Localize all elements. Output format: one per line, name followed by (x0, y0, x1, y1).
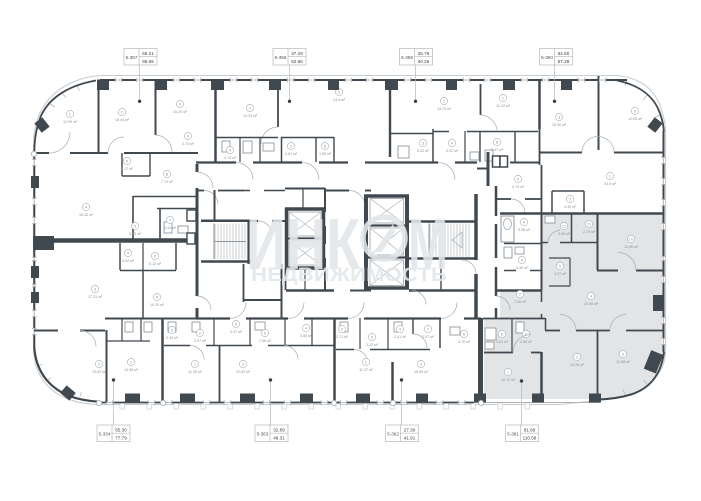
svg-text:3.07 м²: 3.07 м² (554, 272, 567, 276)
svg-text:5.85 м²: 5.85 м² (129, 232, 142, 236)
svg-text:52.86: 52.86 (291, 59, 303, 64)
svg-text:15.44 м²: 15.44 м² (115, 118, 130, 122)
svg-text:25.76: 25.76 (418, 51, 430, 56)
svg-text:3.55 м²: 3.55 м² (520, 340, 533, 344)
svg-text:13.56 м²: 13.56 м² (624, 245, 639, 249)
svg-text:3.02 м²: 3.02 м² (417, 149, 430, 153)
svg-text:110.58: 110.58 (523, 436, 537, 441)
svg-text:12.99 м²: 12.99 м² (63, 120, 78, 124)
svg-text:24.9 м²: 24.9 м² (604, 182, 617, 186)
svg-text:5-359: 5-359 (401, 55, 413, 60)
svg-text:НЕДВИЖИМОСТЬ: НЕДВИЖИМОСТЬ (251, 264, 447, 286)
svg-text:3.06 м²: 3.06 м² (558, 232, 571, 236)
svg-text:2.61 м²: 2.61 м² (285, 152, 298, 156)
svg-text:10: 10 (629, 236, 634, 241)
svg-text:48.31: 48.31 (273, 436, 285, 441)
svg-text:10.72 м²: 10.72 м² (501, 378, 516, 382)
svg-text:3.61 м²: 3.61 м² (496, 340, 509, 344)
svg-text:37.29: 37.29 (291, 51, 303, 56)
svg-text:4.70 м²: 4.70 м² (512, 185, 525, 189)
svg-text:2.76 м²: 2.76 м² (583, 230, 596, 234)
svg-text:2.57 м²: 2.57 м² (230, 330, 243, 334)
svg-text:15.55 м²: 15.55 м² (414, 370, 429, 374)
svg-text:14.73 м²: 14.73 м² (437, 107, 452, 111)
svg-text:7.74 м²: 7.74 м² (161, 180, 174, 184)
svg-text:13.23 м²: 13.23 м² (243, 114, 258, 118)
svg-text:3.22 м²: 3.22 м² (446, 149, 459, 153)
svg-text:10.20 м²: 10.20 м² (150, 303, 165, 307)
svg-text:69.21: 69.21 (142, 51, 154, 56)
svg-text:11.26 м²: 11.26 м² (188, 370, 203, 374)
svg-text:5-363: 5-363 (257, 431, 269, 436)
svg-text:2.34 м²: 2.34 м² (166, 336, 179, 340)
svg-text:27.31 м²: 27.31 м² (88, 295, 103, 299)
svg-text:12.88 м²: 12.88 м² (616, 360, 631, 364)
svg-text:2.57 м²: 2.57 м² (194, 339, 207, 343)
svg-text:15.30 м²: 15.30 м² (552, 123, 567, 127)
svg-text:5.12 м²: 5.12 м² (149, 262, 162, 266)
svg-text:55.30: 55.30 (115, 427, 127, 432)
svg-text:4.44 м²: 4.44 м² (164, 226, 177, 230)
svg-text:14.36 м²: 14.36 м² (124, 368, 139, 372)
svg-text:5-357: 5-357 (126, 55, 138, 60)
svg-text:5-361: 5-361 (507, 431, 519, 436)
svg-text:3.70 м²: 3.70 м² (458, 340, 471, 344)
svg-text:32.89: 32.89 (273, 427, 285, 432)
svg-text:7.26 м²: 7.26 м² (514, 300, 527, 304)
svg-text:5-358: 5-358 (275, 55, 287, 60)
svg-text:4.40 м²: 4.40 м² (516, 266, 529, 270)
svg-text:4.30 м²: 4.30 м² (564, 205, 577, 209)
svg-text:2.07 м²: 2.07 м² (422, 335, 435, 339)
svg-text:67.28: 67.28 (558, 59, 570, 64)
svg-text:41.91: 41.91 (404, 436, 416, 441)
svg-text:14.28 м²: 14.28 м² (570, 363, 585, 367)
svg-text:20.90 м²: 20.90 м² (584, 302, 599, 306)
svg-text:13.63 м²: 13.63 м² (92, 370, 107, 374)
svg-text:1.17 м²: 1.17 м² (121, 167, 134, 171)
svg-text:3.22 м²: 3.22 м² (366, 343, 379, 347)
svg-text:21.63 м²: 21.63 м² (236, 370, 251, 374)
svg-text:3.56 м²: 3.56 м² (300, 334, 313, 338)
svg-text:2.47 м²: 2.47 м² (491, 148, 504, 152)
svg-text:7.06 м²: 7.06 м² (259, 339, 272, 343)
svg-text:5.96 м²: 5.96 м² (518, 228, 531, 232)
svg-text:1.80 м²: 1.80 м² (319, 152, 332, 156)
svg-text:3.74 м²: 3.74 м² (182, 142, 195, 146)
svg-text:30.40 м²: 30.40 м² (79, 213, 94, 217)
svg-text:27.30: 27.30 (404, 427, 416, 432)
svg-text:5-362: 5-362 (387, 431, 399, 436)
svg-text:2.71 м²: 2.71 м² (336, 335, 349, 339)
svg-text:12.05 м²: 12.05 м² (628, 117, 643, 121)
svg-text:52.60: 52.60 (558, 51, 570, 56)
svg-text:2.41 м²: 2.41 м² (394, 335, 407, 339)
svg-text:24.9 м²: 24.9 м² (333, 98, 346, 102)
svg-text:81.89: 81.89 (524, 427, 536, 432)
svg-text:12: 12 (562, 223, 567, 228)
svg-text:3.92 м²: 3.92 м² (122, 259, 135, 263)
svg-text:3.74 м²: 3.74 м² (224, 156, 237, 160)
svg-text:11.37 м²: 11.37 м² (359, 368, 374, 372)
svg-text:15.20 м²: 15.20 м² (173, 110, 188, 114)
svg-text:5-334: 5-334 (99, 431, 111, 436)
svg-text:95.65: 95.65 (142, 59, 154, 64)
svg-text:77.79: 77.79 (115, 436, 127, 441)
svg-text:40.26: 40.26 (418, 59, 430, 64)
svg-text:11.03 м²: 11.03 м² (496, 104, 511, 108)
svg-text:5-360: 5-360 (541, 55, 553, 60)
